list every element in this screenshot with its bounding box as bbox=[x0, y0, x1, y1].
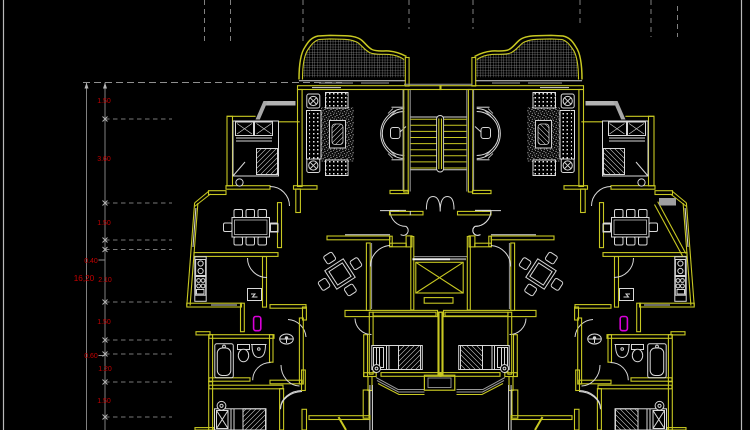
svg-text:0.60: 0.60 bbox=[84, 353, 98, 360]
svg-text:1.50: 1.50 bbox=[97, 319, 111, 326]
svg-text:2.10: 2.10 bbox=[98, 277, 112, 284]
svg-text:16,20: 16,20 bbox=[74, 274, 95, 283]
svg-text:1.50: 1.50 bbox=[97, 98, 111, 105]
svg-text:1.50: 1.50 bbox=[97, 220, 111, 227]
svg-text:0.40: 0.40 bbox=[84, 258, 98, 265]
svg-text:1.50: 1.50 bbox=[97, 398, 111, 405]
svg-text:3.60: 3.60 bbox=[97, 156, 111, 163]
svg-text:1.20: 1.20 bbox=[98, 366, 112, 373]
